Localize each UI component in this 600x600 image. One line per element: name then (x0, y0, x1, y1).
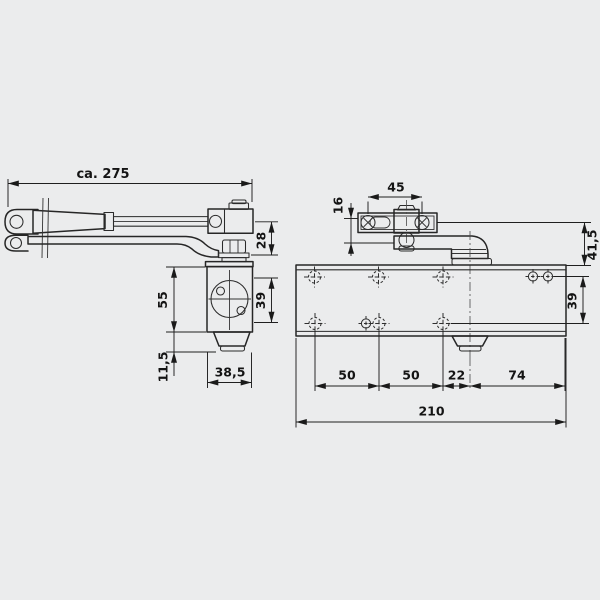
dim-arm-drop-label: 41,5 (585, 230, 600, 261)
dim-body-length-label: 210 (418, 404, 444, 419)
door-closer-technical-drawing: ca. 275 28 55 11,5 39 (0, 0, 600, 600)
dim-hole-row-spacing-label: 39 (565, 292, 580, 309)
dim-pinion-depth-label: 11,5 (156, 352, 171, 383)
dim-bracket-hole-spacing-label: 45 (387, 180, 404, 195)
canvas-background (0, 0, 600, 600)
dim-arm-height-label: 28 (254, 232, 269, 249)
dim-total-length-label: ca. 275 (76, 167, 129, 182)
dim-body-height-label: 55 (155, 291, 170, 308)
dim-bracket-plate-height-label: 16 (331, 197, 346, 215)
dim-pinion-to-end-label: 74 (508, 368, 526, 383)
dim-hole-pitch-left-label: 50 (338, 368, 356, 383)
dim-pinion-to-hole-label: 22 (448, 368, 465, 383)
dim-hole-spacing-side-label: 39 (253, 292, 268, 309)
dim-body-width-label: 38,5 (215, 365, 246, 380)
dim-hole-pitch-mid-label: 50 (402, 368, 420, 383)
